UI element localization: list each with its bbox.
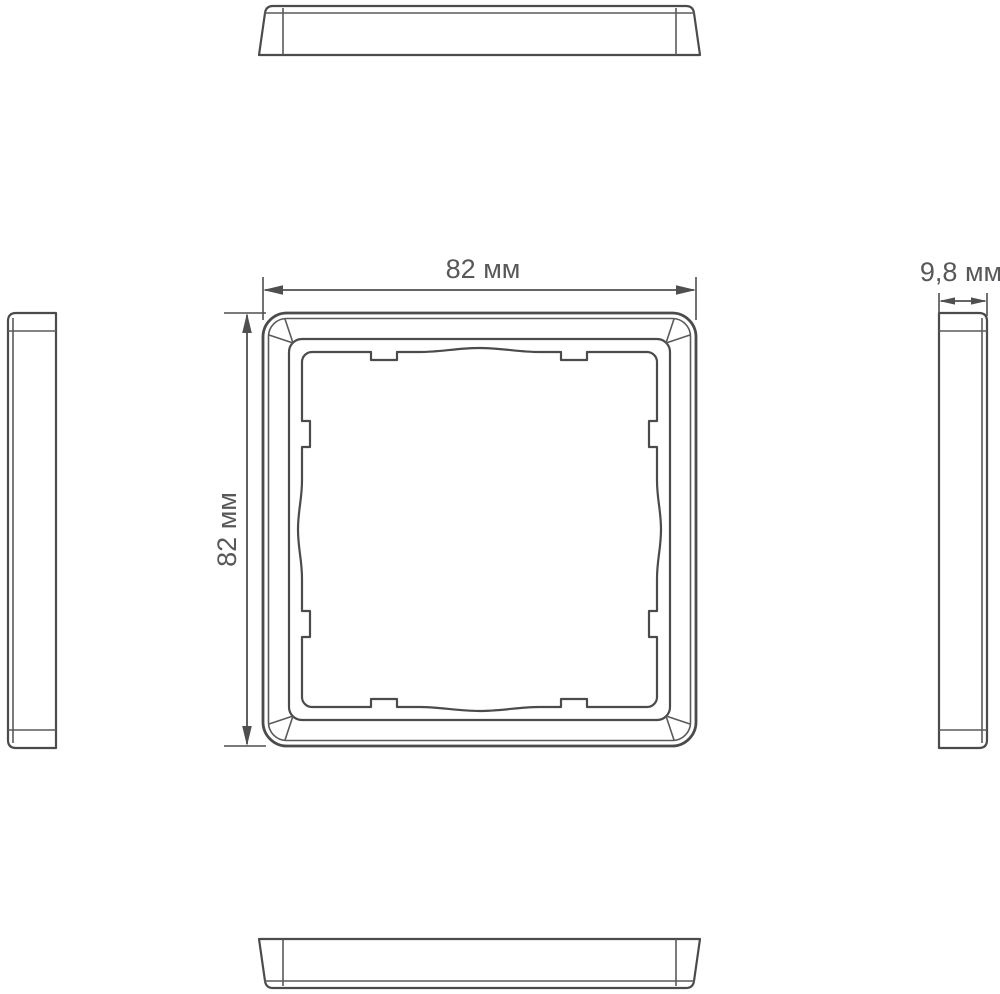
dimension-width: 82 мм [263,254,696,320]
right-view-outline [939,313,987,748]
arrow-left-icon [263,285,283,295]
width-dimension-label: 82 мм [446,254,521,284]
arrow-left-icon [939,297,955,304]
bottom-view [259,939,700,988]
front-outer-contour [263,313,696,746]
front-opening [298,348,661,711]
height-dimension-label: 82 мм [212,492,242,567]
dimension-depth: 9,8 мм [920,257,1000,316]
front-view [263,313,696,746]
front-bevel-line [289,339,670,720]
arrow-right-icon [676,285,696,295]
top-view [259,6,700,55]
right-side-view [939,313,987,748]
front-corner-chamfers [269,319,690,740]
arrow-right-icon [971,297,987,304]
dimension-height: 82 мм [212,313,266,746]
drawing-canvas: 82 мм 82 мм 9,8 мм [0,0,1000,994]
arrow-down-icon [242,726,252,746]
depth-dimension-label: 9,8 мм [920,257,1000,287]
arrow-up-icon [242,313,252,333]
left-side-view [8,313,56,748]
left-view-outline [8,313,56,748]
frame-technical-drawing: 82 мм 82 мм 9,8 мм [0,0,1000,994]
front-edge-line [269,319,691,741]
